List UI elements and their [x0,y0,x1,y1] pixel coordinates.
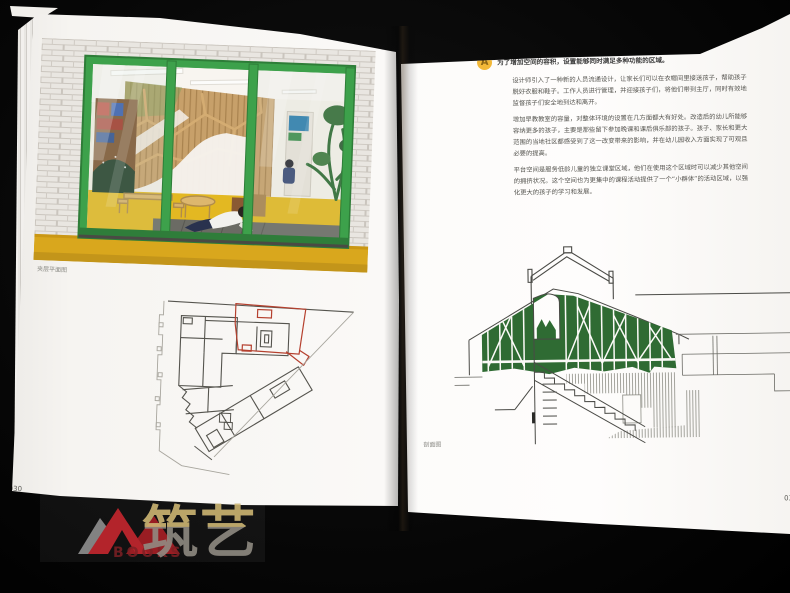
kindergarten-interior-photo [33,38,375,273]
answer-badge: A [477,55,492,70]
watermark-brand-text: 筑艺 筑艺 [142,488,282,560]
section-heading: 为了增加空间的容积，设置能够同时满足多种功能的区域。 [497,53,761,67]
left-page-number: 030 [8,485,22,494]
badge-letter: A [481,57,489,68]
book-gutter-shadow [384,26,418,531]
body-text: 设计师引入了一种新的人员流通设计，让家长们可以在衣帽间里接送孩子，帮助孩子脱好衣… [512,72,748,204]
right-page-number: 031 [784,495,790,504]
paragraph-2: 增加早教教室的容量，对整体环境的设置在几方面都大有好处。改造后的幼儿所能够容纳更… [513,111,748,160]
floor-plan-drawing [133,284,370,485]
paragraph-1: 设计师引入了一种新的人员流通设计，让家长们可以在衣帽间里接送孩子，帮助孩子脱好衣… [512,72,747,109]
building-section-drawing [453,241,790,453]
book-product-photo: 夹层平面图 [0,0,790,593]
paragraph-3: 平台空间是服务低龄儿童的独立课堂区域，他们在使用这个区域时可以减少其他空间的拥挤… [513,162,748,199]
section-caption: 剖面图 [423,442,441,450]
plan-caption: 夹层平面图 [37,266,67,275]
